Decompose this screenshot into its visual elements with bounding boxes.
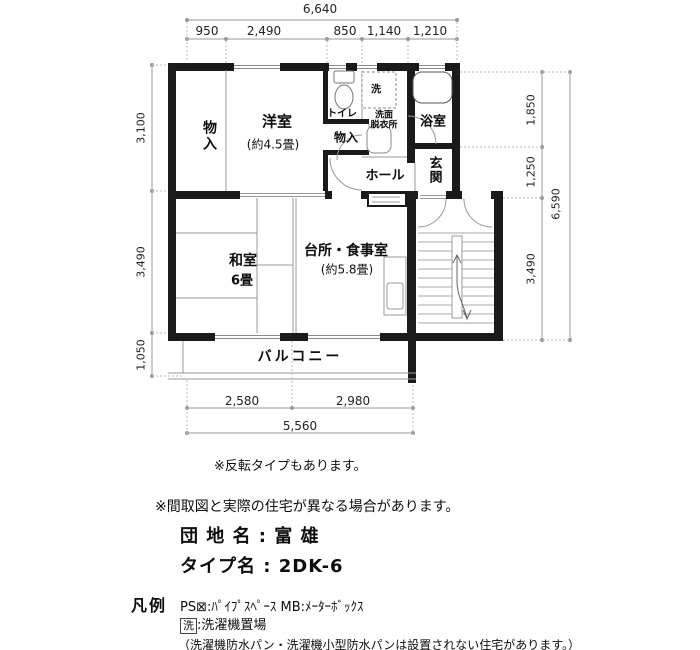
- dim-right-3490: 3,490: [525, 253, 538, 285]
- note-reverse-type: ※反転タイプもあります。: [214, 455, 367, 474]
- room-label-western-room-size: (約4.5畳): [247, 136, 299, 153]
- room-label-western-room: 洋室: [262, 111, 292, 132]
- entrance-door-arc: [418, 199, 446, 227]
- room-label-kitchen-size: (約5.8畳): [321, 261, 373, 278]
- room-label-hall: ホール: [365, 165, 404, 184]
- dim-left-3490: 3,490: [135, 246, 148, 278]
- dim-top-2490: 2,490: [247, 24, 281, 38]
- note-disclaimer: ※間取図と実際の住宅が異なる場合があります。: [155, 496, 459, 516]
- legend-wash-symbol: 洗: [180, 618, 197, 634]
- dim-bottom-total: 5,560: [283, 419, 317, 433]
- dim-right-1850: 1,850: [525, 94, 538, 126]
- legend-title: 凡例: [131, 592, 167, 616]
- dim-left-1050: 1,050: [135, 339, 148, 371]
- room-label-japanese-room: 和室: [229, 250, 257, 270]
- dim-bottom-2580: 2,580: [225, 394, 259, 408]
- room-label-toilet: トイレ: [327, 105, 357, 120]
- room-label-closet-mid: 物入: [334, 129, 358, 146]
- estate-name-row: 団 地 名 : 富 雄: [180, 522, 320, 548]
- dimension-ticks: [150, 18, 572, 435]
- neighbor-door-arc: [464, 199, 492, 227]
- stairs: [418, 233, 494, 323]
- dim-top-850: 850: [334, 24, 357, 38]
- room-label-entrance: 玄関: [425, 156, 444, 184]
- dim-left-3100: 3,100: [135, 112, 148, 144]
- room-label-japanese-room-size: 6畳: [231, 270, 253, 289]
- room-label-closet-left: 物入: [199, 120, 219, 152]
- room-label-washroom-2: 脱衣所: [370, 118, 397, 131]
- legend-wash-text: :洗濯機置場: [197, 618, 266, 633]
- meter-box-icon: [368, 193, 406, 206]
- floorplan-drawing: [0, 0, 700, 650]
- dim-top-total: 6,640: [303, 2, 337, 16]
- kitchen-sink-icon: [387, 283, 403, 309]
- type-name-row: タイプ名 : 2DK-6: [180, 552, 344, 578]
- dim-top-1210: 1,210: [413, 24, 447, 38]
- hall-door-arc: [330, 158, 362, 190]
- toilet-tank-icon: [334, 71, 354, 83]
- dim-top-950: 950: [196, 24, 219, 38]
- dim-top-1140: 1,140: [367, 24, 401, 38]
- legend-wash-row: 洗:洗濯機置場: [180, 614, 266, 634]
- room-label-laundry: 洗: [371, 81, 381, 96]
- legend-ps-mb: PS⊠:ﾊﾟｲﾌﾟｽﾍﾟｰｽ MB:ﾒｰﾀｰﾎﾞｯｸｽ: [180, 596, 364, 615]
- dim-right-1250: 1,250: [525, 156, 538, 188]
- floorplan-page: 6,640 950 2,490 850 1,140 1,210 3,100 3,…: [0, 0, 700, 650]
- room-label-kitchen: 台所・食事室: [304, 240, 388, 260]
- dim-bottom-2980: 2,980: [336, 394, 370, 408]
- legend-footnote: （洗濯機防水パン・洗濯機小型防水パンは設置されない住宅があります。）: [178, 636, 580, 650]
- room-label-balcony: バルコニー: [258, 346, 343, 366]
- dimension-lines: [152, 20, 570, 433]
- bathtub-icon: [413, 72, 452, 103]
- room-label-bathroom: 浴室: [420, 111, 446, 130]
- dim-right-total: 6,590: [550, 188, 563, 220]
